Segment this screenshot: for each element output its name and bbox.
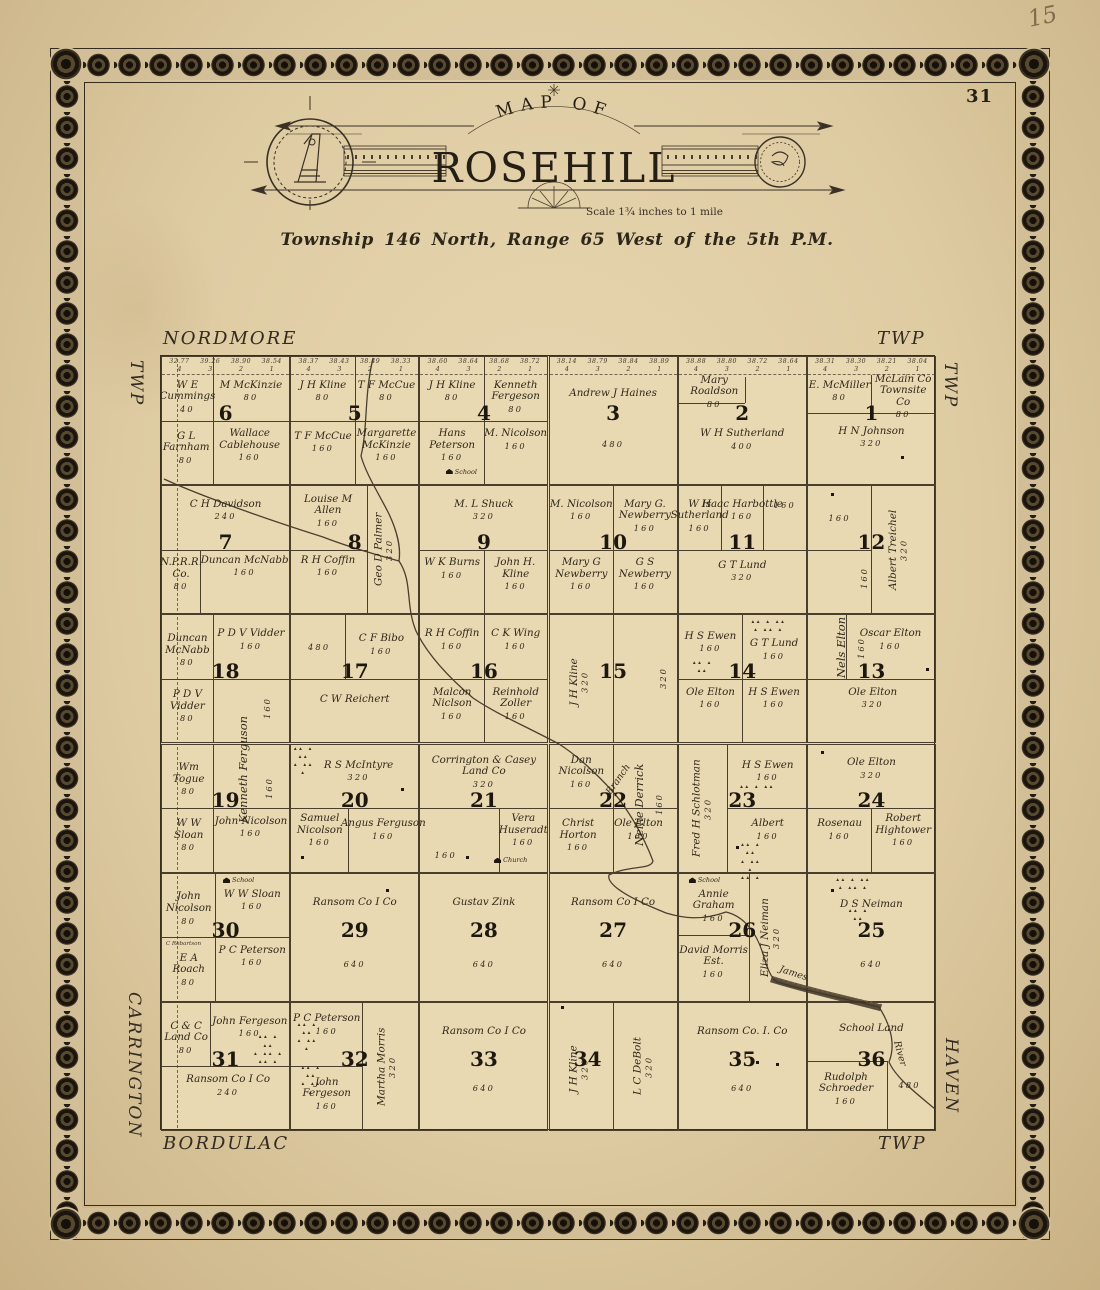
lot-acreage: 32.77 xyxy=(169,358,189,365)
section-number: 33 xyxy=(470,1047,498,1071)
parcel-label: M. Nicolson160 xyxy=(484,428,548,481)
lot-acreage: 38.49 xyxy=(360,358,380,365)
edge-label-twp-right: TWP xyxy=(940,362,960,408)
owner-name: Geo D Palmer xyxy=(374,513,386,586)
parcel-acreage: 160 xyxy=(309,838,331,847)
parcel-label: Vera Huseradt160 xyxy=(499,813,547,856)
owner-name: Albert xyxy=(751,818,783,830)
owner-name: Oscar Elton xyxy=(860,628,922,640)
section-number: 30 xyxy=(212,918,240,942)
owner-name: Ole Elton xyxy=(686,687,735,699)
parcel-acreage: 160 xyxy=(856,637,866,659)
section-33: Ransom Co I Co64033 xyxy=(419,1002,548,1131)
owner-name: Corrington & Casey Land Co xyxy=(420,755,547,778)
parcel-division-line xyxy=(871,808,872,872)
owner-name: David Morris Est. xyxy=(679,945,749,968)
parcel-label: Ole Elton160 xyxy=(679,687,743,738)
section-5: 38.3738.4338.4938.334321J H Kline80T F M… xyxy=(290,356,419,485)
section-number: 9 xyxy=(477,530,491,554)
owner-name: G S Newberry xyxy=(613,557,677,580)
parcel-acreage: 320 xyxy=(473,512,495,521)
school-icon xyxy=(223,877,230,883)
border-bottom xyxy=(52,1208,1048,1238)
parcel-label: N.P.R.R. Co.80 xyxy=(162,557,200,610)
parcel-label: J H Kline320 xyxy=(555,626,606,738)
section-26: Annie Graham160David Morris Est.160Eliza… xyxy=(678,873,807,1002)
parcel-label: John H. Kline160 xyxy=(484,557,548,608)
lot-acres-row: 32.7739.2638.9038.54 xyxy=(164,358,287,365)
parcel-acreage: 640 xyxy=(602,960,624,969)
parcel-acreage: 160 xyxy=(441,453,463,462)
parcel-label: P C Peterson160 xyxy=(215,945,289,996)
edge-label-haven: HAVEN xyxy=(941,1038,961,1114)
church-label: Church xyxy=(503,856,527,864)
lot-acreage: 38.72 xyxy=(748,358,768,365)
parcel-acreage: 160 xyxy=(505,642,527,651)
section-18: Duncan McNabb80P D V Vidder160P D V Vidd… xyxy=(161,614,290,743)
lot-number: 2 xyxy=(756,365,760,373)
atlas-page: 15 31 MAP OF xyxy=(0,0,1100,1290)
lot-numbers-strip: 32.7739.2638.9038.544321 xyxy=(162,357,289,375)
lot-numbers-strip: 38.1438.7938.8438.894321 xyxy=(550,357,677,375)
farmstead-dot xyxy=(386,889,389,892)
section-35: Ransom Co. I. Co64035 xyxy=(678,1002,807,1131)
parcel-label: Duncan McNabb80 xyxy=(162,633,213,681)
lot-number: 4 xyxy=(694,365,698,373)
border-corner-medallion xyxy=(1017,1207,1051,1241)
section-17: 480C F Bibo160C W Reichert17 xyxy=(290,614,419,743)
parcel-acreage: 80 xyxy=(832,393,847,402)
parcel-acreage: 160 xyxy=(699,644,721,653)
parcel-acreage: 40 xyxy=(180,405,195,414)
border-top xyxy=(52,50,1048,80)
parcel-acreage: 160 xyxy=(570,780,592,789)
section-19: Wm Togue80W W Sloan80John Nicolson16019 xyxy=(161,744,290,873)
section-11: W H Sutherland160Isaac Harbottle160160G … xyxy=(678,485,807,614)
lot-acres-row: 38.1438.7938.8438.89 xyxy=(552,358,675,365)
parcel-acreage: 160 xyxy=(512,838,534,847)
section-number: 13 xyxy=(858,659,886,683)
owner-name: Albert Treichel xyxy=(888,510,900,590)
parcel-acreage: 640 xyxy=(860,960,882,969)
lot-number: 3 xyxy=(466,365,470,373)
parcel-acreage: 240 xyxy=(217,1088,239,1097)
section-number: 1 xyxy=(864,401,878,425)
owner-name: John H. Kline xyxy=(484,557,548,580)
parcel-label: Malcon Niclson160 xyxy=(420,687,484,738)
parcel-label: R H Coffin160 xyxy=(291,555,365,608)
trees-symbol: ▴▴ ▴ ▴▴▴ ▴▴ ▴ xyxy=(836,876,872,893)
section-32: P C Peterson160John Fergeson160Martha Mo… xyxy=(290,1002,419,1131)
owner-name: Duncan McNabb xyxy=(201,555,289,567)
farmstead-dot xyxy=(901,456,904,459)
lot-number: 4 xyxy=(823,365,827,373)
lot-index-row: 4321 xyxy=(552,365,675,373)
section-number: 23 xyxy=(728,788,756,812)
section-13: Oscar Elton160Ole Elton32013 xyxy=(807,614,936,743)
owner-name: Ransom Co I Co xyxy=(571,897,655,909)
section-21: Corrington & Casey Land Co320160Vera Hus… xyxy=(419,744,548,873)
section-36: School LandRudolph Schroeder16048036 xyxy=(807,1002,936,1131)
parcel-label: Fred H Schlotman320 xyxy=(684,750,722,867)
owner-name: N.P.R.R. Co. xyxy=(160,557,202,580)
scale-note: Scale 1¾ inches to 1 mile xyxy=(586,206,723,218)
lot-acreage: 38.84 xyxy=(618,358,638,365)
owner-name: Kenneth Fergeson xyxy=(484,380,548,403)
owner-name: P C Peterson xyxy=(219,945,286,957)
parcel-label: McLain Co Townsite Co80 xyxy=(871,374,935,416)
parcel-label: Ransom Co I Co240 xyxy=(167,1074,289,1127)
parcel-division-line xyxy=(721,486,722,550)
parcel-label: J H Kline80 xyxy=(420,380,484,421)
border-right xyxy=(1018,50,1048,1238)
owner-name: R H Coffin xyxy=(425,628,480,640)
owner-name: C W Reichert xyxy=(320,694,390,706)
owner-name: P D V Vidder xyxy=(162,689,213,712)
lot-number: 2 xyxy=(497,365,501,373)
owner-name: Louise M Allen xyxy=(291,494,365,517)
owner-name: G T Lund xyxy=(718,560,766,572)
section-28: Gustav Zink64028 xyxy=(419,873,548,1002)
parcel-label: Hans Peterson160 xyxy=(420,428,484,471)
owner-name: Duncan McNabb xyxy=(162,633,213,656)
lot-acreage: 38.89 xyxy=(649,358,669,365)
section-number: 36 xyxy=(858,1047,886,1071)
section-number: 32 xyxy=(341,1047,369,1071)
parcel-label: Ransom Co. I. Co xyxy=(679,1026,806,1044)
parcel-acreage: 320 xyxy=(860,439,882,448)
parcel-label: Duncan McNabb160 xyxy=(200,555,289,608)
section-number: 21 xyxy=(470,788,498,812)
parcel-acreage: 160 xyxy=(505,442,527,451)
parcel-label: L C DeBolt320 xyxy=(616,1008,672,1125)
school-symbol: School xyxy=(446,468,477,476)
parcel-acreage: 160 xyxy=(774,501,796,510)
owner-name: J H Kline xyxy=(300,380,347,392)
owner-name: T F McCue xyxy=(294,431,351,443)
parcel-acreage: 320 xyxy=(862,700,884,709)
parcel-label: 640 xyxy=(420,1082,547,1097)
trees-symbol: ▴▴ ▴ ▴▴▴ ▴▴ ▴ xyxy=(296,1021,319,1054)
lot-number: 4 xyxy=(306,365,310,373)
edge-label-carrington: CARRINGTON xyxy=(124,992,144,1138)
handwritten-number: 15 xyxy=(1026,1,1060,33)
owner-name: Vera Huseradt xyxy=(499,813,548,836)
parcel-acreage: 160 xyxy=(240,829,262,838)
section-24: Ole Elton320Rosenau160Robert Hightower16… xyxy=(807,744,936,873)
parcel-label: C W Reichert xyxy=(291,694,418,719)
parcel-acreage: 640 xyxy=(473,960,495,969)
section-7: C H Davidson240N.P.R.R. Co.80Duncan McNa… xyxy=(161,485,290,614)
section-23: Fred H Schlotman320H S Ewen160Albert160▴… xyxy=(678,744,807,873)
church-symbol: Church xyxy=(494,856,527,864)
owner-name: Mary G Newberry xyxy=(550,557,614,580)
owner-name: M. L Shuck xyxy=(454,499,514,511)
owner-name: H S Ewen xyxy=(742,760,794,772)
parcel-acreage: 80 xyxy=(244,393,259,402)
lot-acreage: 38.21 xyxy=(877,358,897,365)
parcel-label: Geo D Palmer320 xyxy=(367,491,403,608)
owner-name: H S Ewen xyxy=(748,687,800,699)
parcel-acreage: 80 xyxy=(181,843,196,852)
owner-name: John Nicolson xyxy=(162,891,215,914)
section-number: 31 xyxy=(212,1047,240,1071)
page-number: 31 xyxy=(966,86,993,107)
section-number: 3 xyxy=(606,401,620,425)
parcel-label: Ransom Co I Co xyxy=(291,897,418,915)
parcel-label: Wallace Cablehouse160 xyxy=(210,428,289,481)
section-14: H S Ewen160G T Lund160Ole Elton160H S Ew… xyxy=(678,614,807,743)
school-label: School xyxy=(698,876,720,884)
owner-name: Ole Elton xyxy=(848,687,897,699)
parcel-acreage: 160 xyxy=(634,524,656,533)
parcel-label: Samuel Nicolson160 xyxy=(291,813,348,866)
owner-name: H N Johnson xyxy=(838,426,904,438)
parcel-label: H N Johnson320 xyxy=(808,426,935,474)
section-29: Ransom Co I Co64029 xyxy=(290,873,419,1002)
parcel-label: T F McCue160 xyxy=(291,431,355,482)
parcel-label: W H Sutherland160 xyxy=(679,499,721,547)
parcel-label: David Morris Est.160 xyxy=(679,945,749,998)
parcel-acreage: 320 xyxy=(580,670,589,692)
lot-number: 2 xyxy=(626,365,630,373)
section-number: 29 xyxy=(341,918,369,942)
farmstead-dot xyxy=(821,751,824,754)
owner-name: Martha Morris xyxy=(376,1027,388,1105)
section-27: Ransom Co I Co64027 xyxy=(549,873,678,1002)
lot-acreage: 38.68 xyxy=(489,358,509,365)
owner-name: Andrew J Haines xyxy=(569,388,657,400)
lot-acreage: 38.60 xyxy=(428,358,448,365)
parcel-label: Eliza J Neiman320 xyxy=(750,879,793,996)
lot-acreage: 38.64 xyxy=(778,358,798,365)
parcel-acreage: 160 xyxy=(262,697,272,719)
section-number: 25 xyxy=(858,918,886,942)
lot-number: 1 xyxy=(528,365,532,373)
parcel-acreage: 160 xyxy=(731,512,753,521)
parcel-acreage: 640 xyxy=(473,1084,495,1093)
parcel-label: E A Roach80 xyxy=(162,953,215,999)
owner-name: Hans Peterson xyxy=(420,428,484,451)
section-8: Louise M Allen160R H Coffin160Geo D Palm… xyxy=(290,485,419,614)
section-12: 160Albert Treichel32012 xyxy=(807,485,936,614)
owner-name: John Nicolson xyxy=(215,816,288,828)
parcel-division-line xyxy=(745,377,746,402)
parcel-division-line xyxy=(887,1061,888,1130)
parcel-acreage: 160 xyxy=(441,642,463,651)
farmstead-dot xyxy=(756,1061,759,1064)
owner-name: P D V Vidder xyxy=(217,628,284,640)
lot-number: 2 xyxy=(368,365,372,373)
section-2: 38.8838.8038.7238.644321Mary Roaldson80W… xyxy=(678,356,807,485)
lot-number: 3 xyxy=(854,365,858,373)
section-number: 5 xyxy=(348,401,362,425)
parcel-acreage: 160 xyxy=(312,444,334,453)
owner-name: Margarette McKinzie xyxy=(355,428,419,451)
parcel-acreage: 160 xyxy=(634,582,656,591)
owner-name: Christ Horton xyxy=(550,818,607,841)
lot-number: 2 xyxy=(239,365,243,373)
parcel-label: W H Sutherland400 xyxy=(679,428,806,474)
lot-numbers-strip: 38.8838.8038.7238.644321 xyxy=(679,357,806,375)
parcel-acreage: 160 xyxy=(763,652,785,661)
lot-number: 1 xyxy=(916,365,920,373)
township-section-grid: 32.7739.2638.9038.544321W E Cummings40M … xyxy=(160,355,935,1130)
section-number: 16 xyxy=(470,659,498,683)
owner-name: John Fergeson xyxy=(212,1016,287,1028)
lot-index-row: 4321 xyxy=(681,365,804,373)
parcel-division-line xyxy=(763,486,764,550)
parcel-acreage: 160 xyxy=(570,512,592,521)
owner-name: Dan Nicolson xyxy=(550,755,614,778)
owner-name: Ransom Co I Co xyxy=(442,1026,526,1038)
owner-name: C F Bibo xyxy=(359,633,404,645)
owner-name: M McKinzie xyxy=(220,380,283,392)
parcel-division-line xyxy=(200,550,201,614)
edge-label-twp-left: TWP xyxy=(126,360,146,406)
lot-acres-row: 38.6038.6438.6838.72 xyxy=(422,358,545,365)
trees-symbol: ▴▴ ▴ ▴▴▴ ▴▴ ▴ xyxy=(299,1064,324,1097)
parcel-acreage: 80 xyxy=(896,410,911,419)
lot-number: 4 xyxy=(436,365,440,373)
lot-numbers-strip: 38.6038.6438.6838.724321 xyxy=(420,357,547,375)
section-16: R H Coffin160C K Wing160Malcon Niclson16… xyxy=(419,614,548,743)
school-label: School xyxy=(455,468,477,476)
farmstead-dot xyxy=(561,1006,564,1009)
owner-name: T F McCue xyxy=(358,380,415,392)
owner-name: J H Kline xyxy=(569,658,581,706)
parcel-division-line xyxy=(613,1003,614,1130)
edge-label-twp-topright: TWP xyxy=(877,328,926,349)
lot-number: 4 xyxy=(177,365,181,373)
lot-number: 3 xyxy=(596,365,600,373)
owner-name: W K Burns xyxy=(424,557,480,569)
lot-index-row: 4321 xyxy=(293,365,416,373)
parcel-acreage: 160 xyxy=(654,793,664,815)
owner-name: R S McIntyre xyxy=(324,760,393,772)
parcel-label: 640 xyxy=(808,958,935,973)
section-number: 34 xyxy=(574,1047,602,1071)
lot-index-row: 4321 xyxy=(164,365,287,373)
owner-name: Ransom Co I Co xyxy=(186,1074,270,1086)
owner-name: Mary G. Newberry xyxy=(613,499,677,522)
parcel-acreage: 160 xyxy=(264,777,274,799)
parcel-label: Ransom Co I Co xyxy=(550,897,677,915)
parcel-label: W W Sloan80 xyxy=(162,818,215,866)
border-left xyxy=(52,50,82,1238)
parcel-acreage: 80 xyxy=(379,393,394,402)
parcel-acreage: 80 xyxy=(707,400,722,409)
section-20: R S McIntyre320Samuel Nicolson160Angus F… xyxy=(290,744,419,873)
lot-acreage: 38.43 xyxy=(329,358,349,365)
lot-number: 1 xyxy=(786,365,790,373)
parcel-label: Martha Morris320 xyxy=(365,1008,411,1125)
farmstead-dot xyxy=(401,788,404,791)
parcel-acreage: 80 xyxy=(180,658,195,667)
lot-number: 1 xyxy=(657,365,661,373)
parcel-acreage: 480 xyxy=(602,440,624,449)
parcel-label: Reinhold Zoller160 xyxy=(484,687,548,738)
section-number: 12 xyxy=(858,530,886,554)
parcel-acreage: 160 xyxy=(241,902,263,911)
parcel-acreage: 80 xyxy=(181,917,196,926)
spanning-owner-name: Nels Elton xyxy=(834,538,848,678)
parcel-acreage: 320 xyxy=(386,539,395,561)
lot-acreage: 38.64 xyxy=(458,358,478,365)
owner-name: W W Sloan xyxy=(162,818,215,841)
parcel-label: C & C Land Co80 xyxy=(162,1021,210,1069)
section-number: 2 xyxy=(735,401,749,425)
map-title: ROSEHILL xyxy=(432,144,677,192)
parcel-acreage: 160 xyxy=(829,514,851,523)
section-1: 38.3138.3038.2138.044321E. McMiller80McL… xyxy=(807,356,936,485)
parcel-acreage: 160 xyxy=(240,642,262,651)
parcel-acreage: 80 xyxy=(508,405,523,414)
lot-number: 4 xyxy=(565,365,569,373)
section-number: 20 xyxy=(341,788,369,812)
section-number: 4 xyxy=(477,401,491,425)
parcel-acreage: 640 xyxy=(344,960,366,969)
parcel-acreage: 160 xyxy=(689,524,711,533)
section-30: John Nicolson80W W Sloan160E A Roach80P … xyxy=(161,873,290,1002)
parcel-label: John Nicolson160 xyxy=(213,816,289,867)
parcel-label: G L Farnham80 xyxy=(162,431,210,482)
parcel-label: School Land xyxy=(808,1023,935,1041)
parcel-label: Rudolph Schroeder160 xyxy=(808,1072,884,1125)
owner-name: C & C Land Co xyxy=(162,1021,210,1044)
farmstead-dot xyxy=(776,1063,779,1066)
owner-name: Eliza J Neiman xyxy=(760,898,772,977)
parcel-acreage: 160 xyxy=(505,712,527,721)
parcel-acreage: 480 xyxy=(898,1081,920,1090)
owner-name: G L Farnham xyxy=(162,431,210,454)
parcel-acreage: 160 xyxy=(241,958,263,967)
lot-index-row: 4321 xyxy=(422,365,545,373)
section-9: M. L Shuck320W K Burns160John H. Kline16… xyxy=(419,485,548,614)
school-icon xyxy=(446,469,453,475)
church-icon xyxy=(494,858,501,864)
lot-numbers-strip: 38.3738.4338.4938.334321 xyxy=(291,357,418,375)
lot-number: 3 xyxy=(337,365,341,373)
section-number: 26 xyxy=(728,918,756,942)
parcel-label: Ole Elton320 xyxy=(815,687,929,735)
lot-acreage: 38.31 xyxy=(815,358,835,365)
parcel-acreage: 160 xyxy=(505,582,527,591)
parcel-label: Angus Ferguson160 xyxy=(348,818,418,866)
parcel-acreage: 160 xyxy=(757,773,779,782)
parcel-acreage: 80 xyxy=(316,393,331,402)
school-symbol: School xyxy=(223,876,254,884)
lot-acreage: 38.37 xyxy=(298,358,318,365)
parcel-label: 160 xyxy=(433,849,458,864)
owner-name: Robert Hightower xyxy=(871,813,935,836)
owner-name: C K Wing xyxy=(491,628,540,640)
parcel-label: Kenneth Fergeson80 xyxy=(484,380,548,421)
parcel-label: G S Newberry160 xyxy=(613,557,677,608)
parcel-division-line xyxy=(484,550,485,614)
parcel-acreage: 240 xyxy=(214,512,236,521)
parcel-acreage: 160 xyxy=(316,1102,338,1111)
trees-symbol: ▴▴ ▴ ▴▴▴ ▴▴ ▴ xyxy=(294,745,314,778)
parcel-label: Ransom Co I Co xyxy=(420,1026,547,1044)
parcel-label: 480 xyxy=(892,1079,928,1094)
lot-acreage: 38.72 xyxy=(520,358,540,365)
parcel-acreage: 160 xyxy=(703,970,725,979)
owner-name: Rosenau xyxy=(817,818,862,830)
parcel-acreage: 320 xyxy=(860,771,882,780)
lot-acreage: 38.88 xyxy=(686,358,706,365)
lot-number: 2 xyxy=(885,365,889,373)
